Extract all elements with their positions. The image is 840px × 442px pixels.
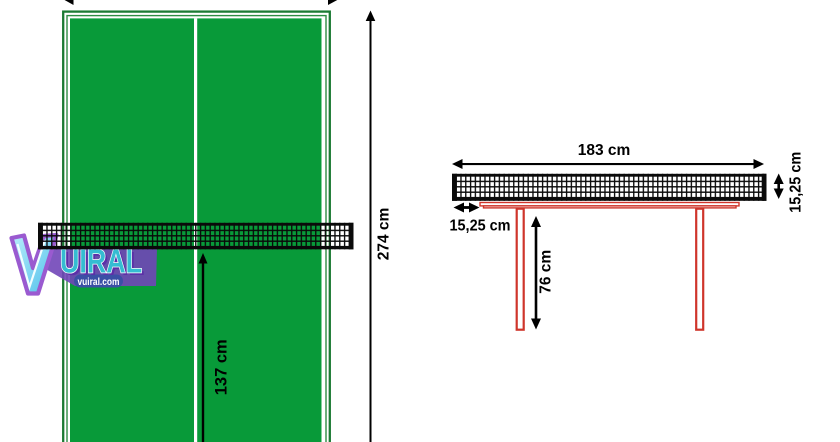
svg-text:15,25 cm: 15,25 cm xyxy=(788,152,805,213)
svg-text:137 cm: 137 cm xyxy=(213,339,231,395)
svg-text:vuiral.com: vuiral.com xyxy=(78,277,120,288)
svg-text:274 cm: 274 cm xyxy=(376,208,393,261)
svg-text:15,25 cm: 15,25 cm xyxy=(450,218,511,235)
svg-text:76 cm: 76 cm xyxy=(538,250,555,294)
svg-text:183 cm: 183 cm xyxy=(578,142,631,159)
